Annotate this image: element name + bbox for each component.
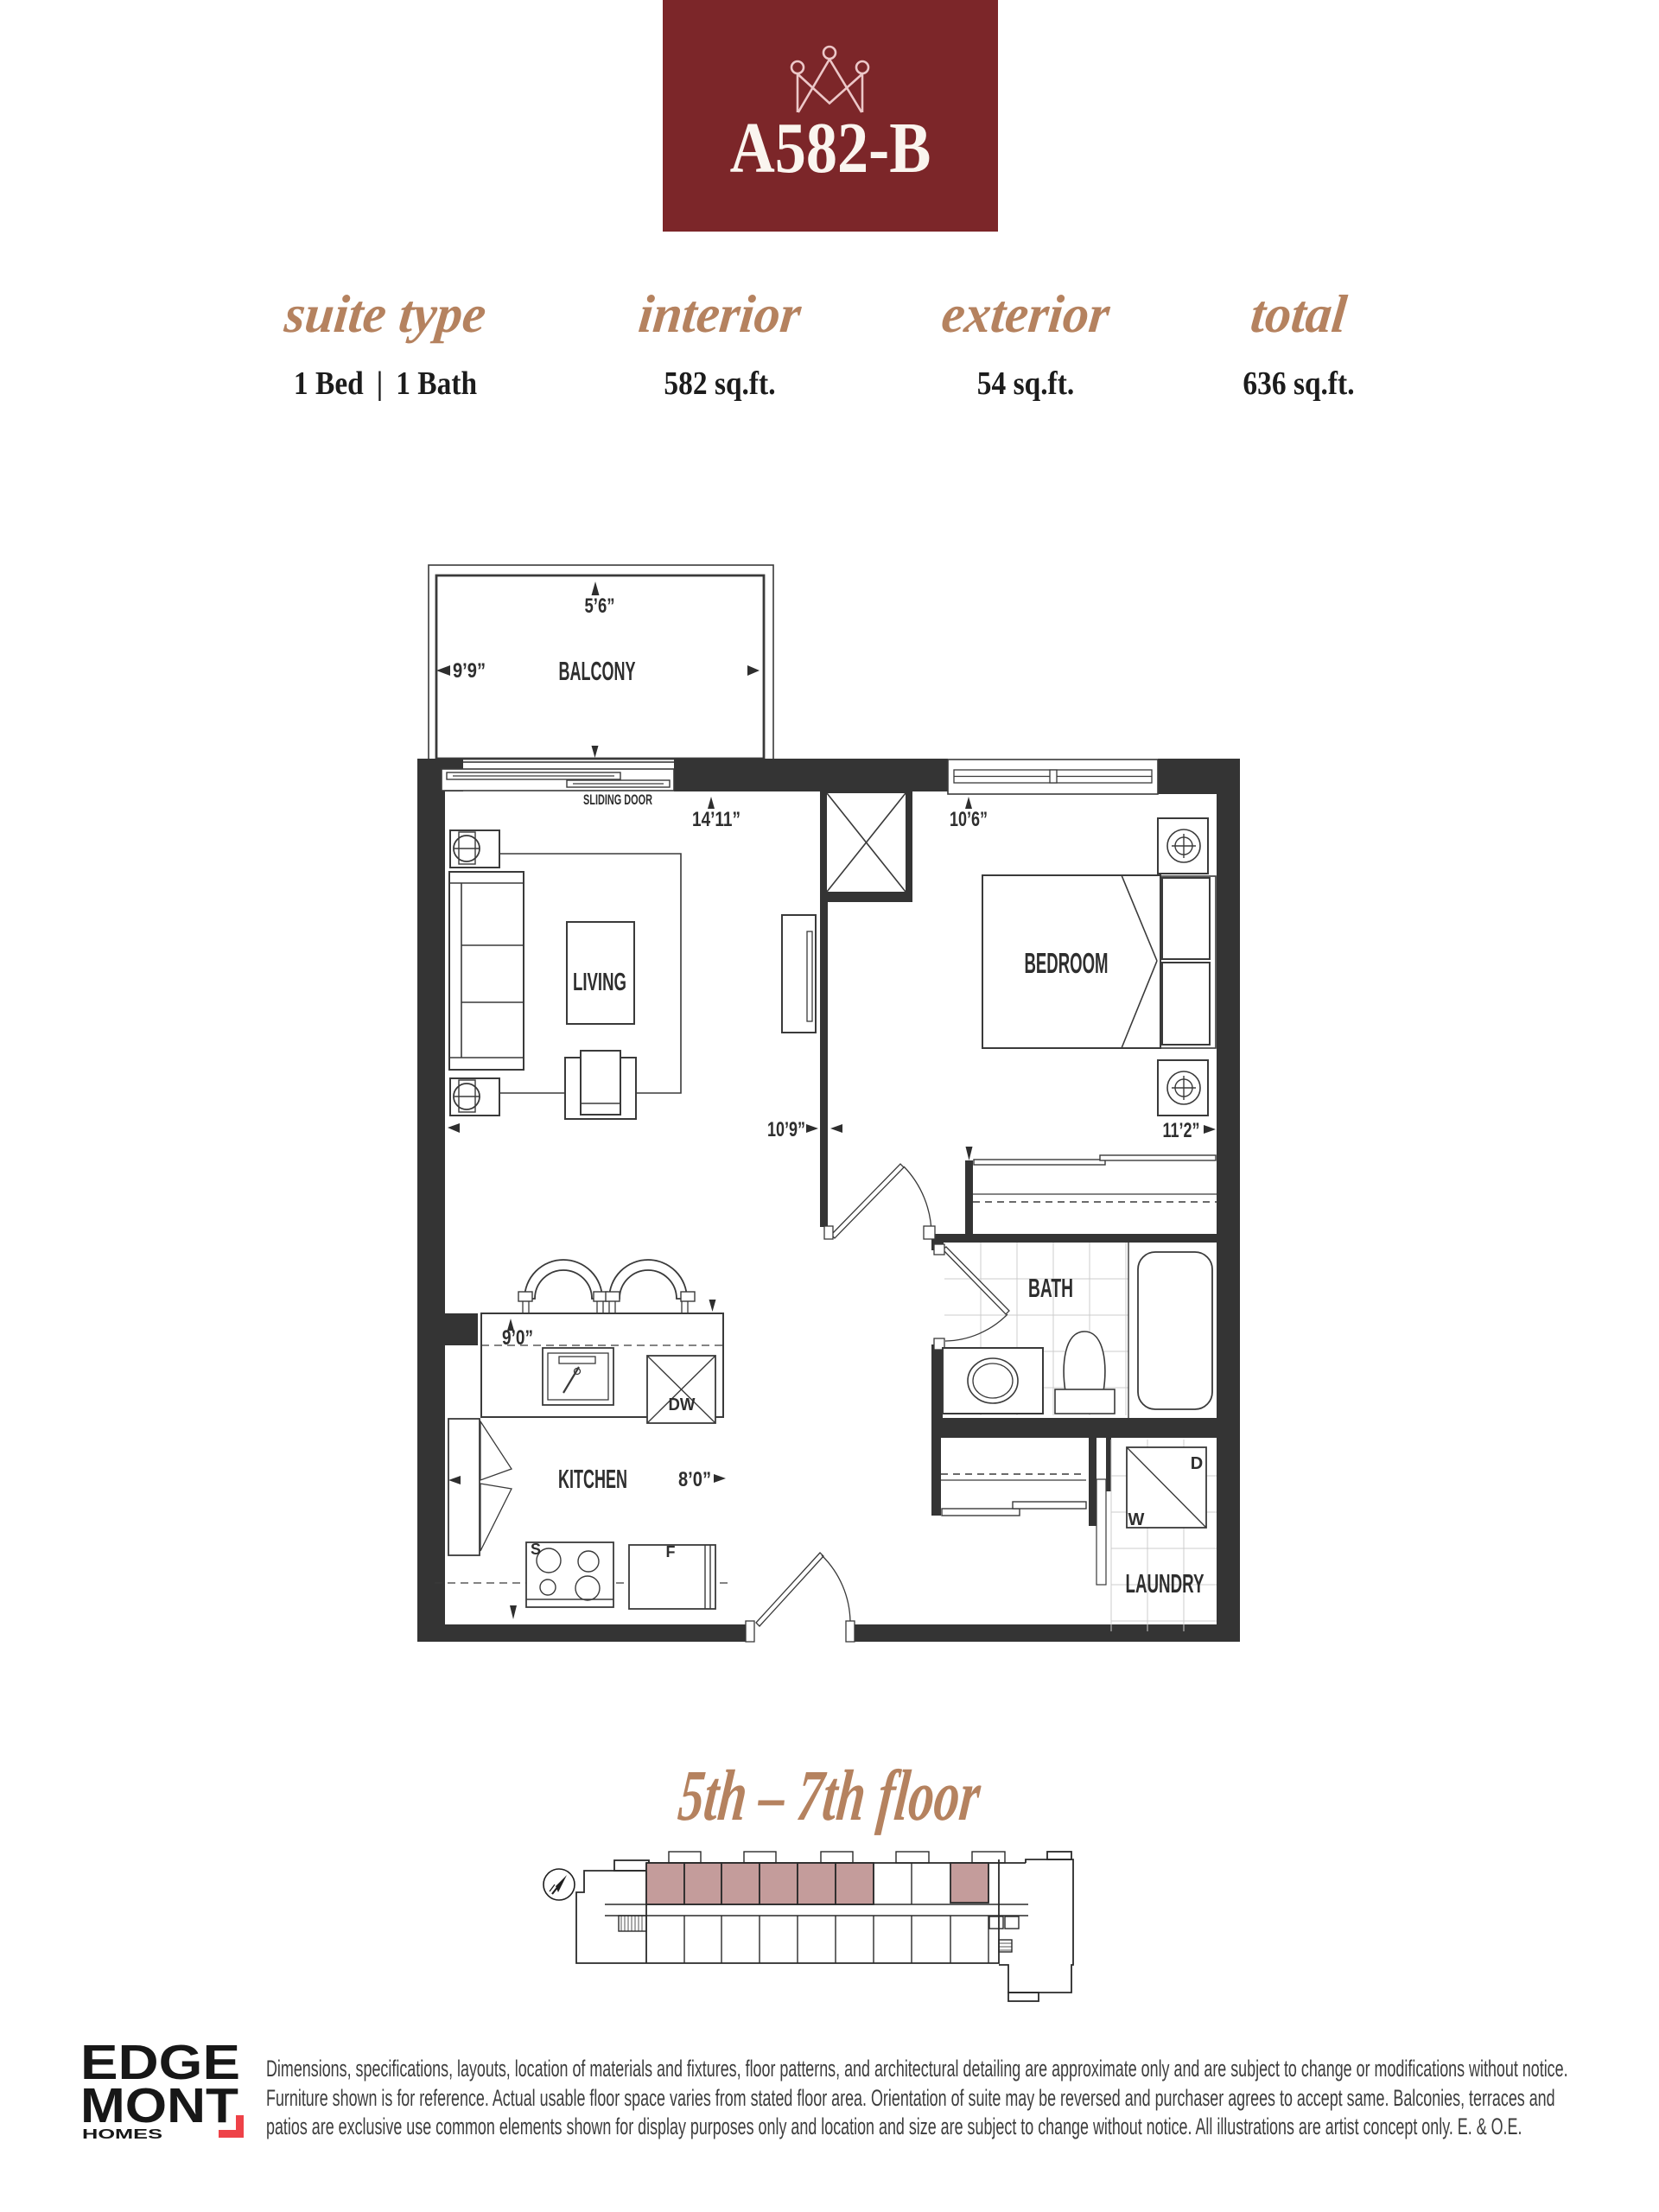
svg-text:DW: DW	[669, 1395, 696, 1414]
svg-text:BEDROOM: BEDROOM	[1025, 947, 1109, 979]
svg-text:BATH: BATH	[1028, 1273, 1073, 1303]
svg-text:KITCHEN: KITCHEN	[558, 1464, 627, 1494]
svg-text:9’9”: 9’9”	[453, 659, 486, 683]
svg-text:HOMES: HOMES	[82, 2127, 163, 2142]
svg-text:BALCONY: BALCONY	[559, 656, 636, 686]
svg-text:8’0”: 8’0”	[678, 1468, 711, 1491]
svg-text:F: F	[666, 1543, 676, 1560]
svg-text:LIVING: LIVING	[573, 969, 626, 996]
svg-text:LAUNDRY: LAUNDRY	[1126, 1568, 1205, 1599]
svg-text:10’9”: 10’9”	[767, 1118, 805, 1141]
svg-text:W: W	[1128, 1510, 1145, 1529]
svg-text:5’6”: 5’6”	[585, 594, 615, 618]
svg-text:11’2”: 11’2”	[1163, 1119, 1200, 1142]
svg-text:9’0”: 9’0”	[502, 1326, 533, 1350]
svg-text:S: S	[531, 1541, 541, 1558]
svg-text:MONT: MONT	[80, 2078, 238, 2133]
svg-text:SLIDING DOOR: SLIDING DOOR	[583, 791, 652, 808]
svg-text:14’11”: 14’11”	[692, 808, 741, 831]
svg-text:10’6”: 10’6”	[950, 808, 988, 831]
svg-text:D: D	[1191, 1454, 1203, 1473]
